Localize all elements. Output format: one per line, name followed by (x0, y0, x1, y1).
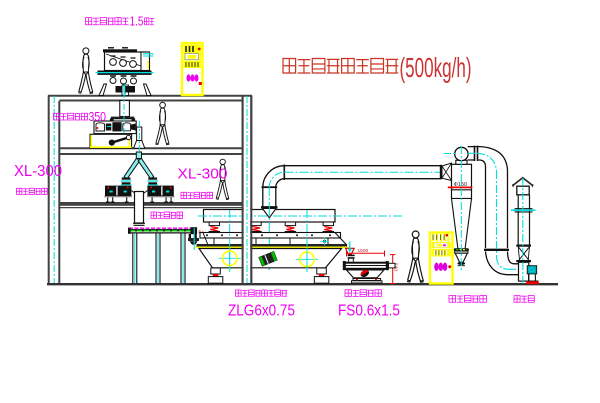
svg-text:(500kg/h): (500kg/h) (400, 52, 472, 83)
svg-text:350: 350 (89, 110, 107, 124)
svg-text:Φ150: Φ150 (454, 182, 468, 188)
svg-text:XL-300: XL-300 (178, 167, 228, 183)
svg-text:1500: 1500 (358, 248, 369, 254)
svg-text:1.5: 1.5 (130, 14, 144, 29)
svg-text:XL-300: XL-300 (14, 163, 62, 180)
svg-text:ZLG6x0.75: ZLG6x0.75 (228, 303, 295, 320)
svg-text:FS0.6x1.5: FS0.6x1.5 (338, 303, 400, 320)
